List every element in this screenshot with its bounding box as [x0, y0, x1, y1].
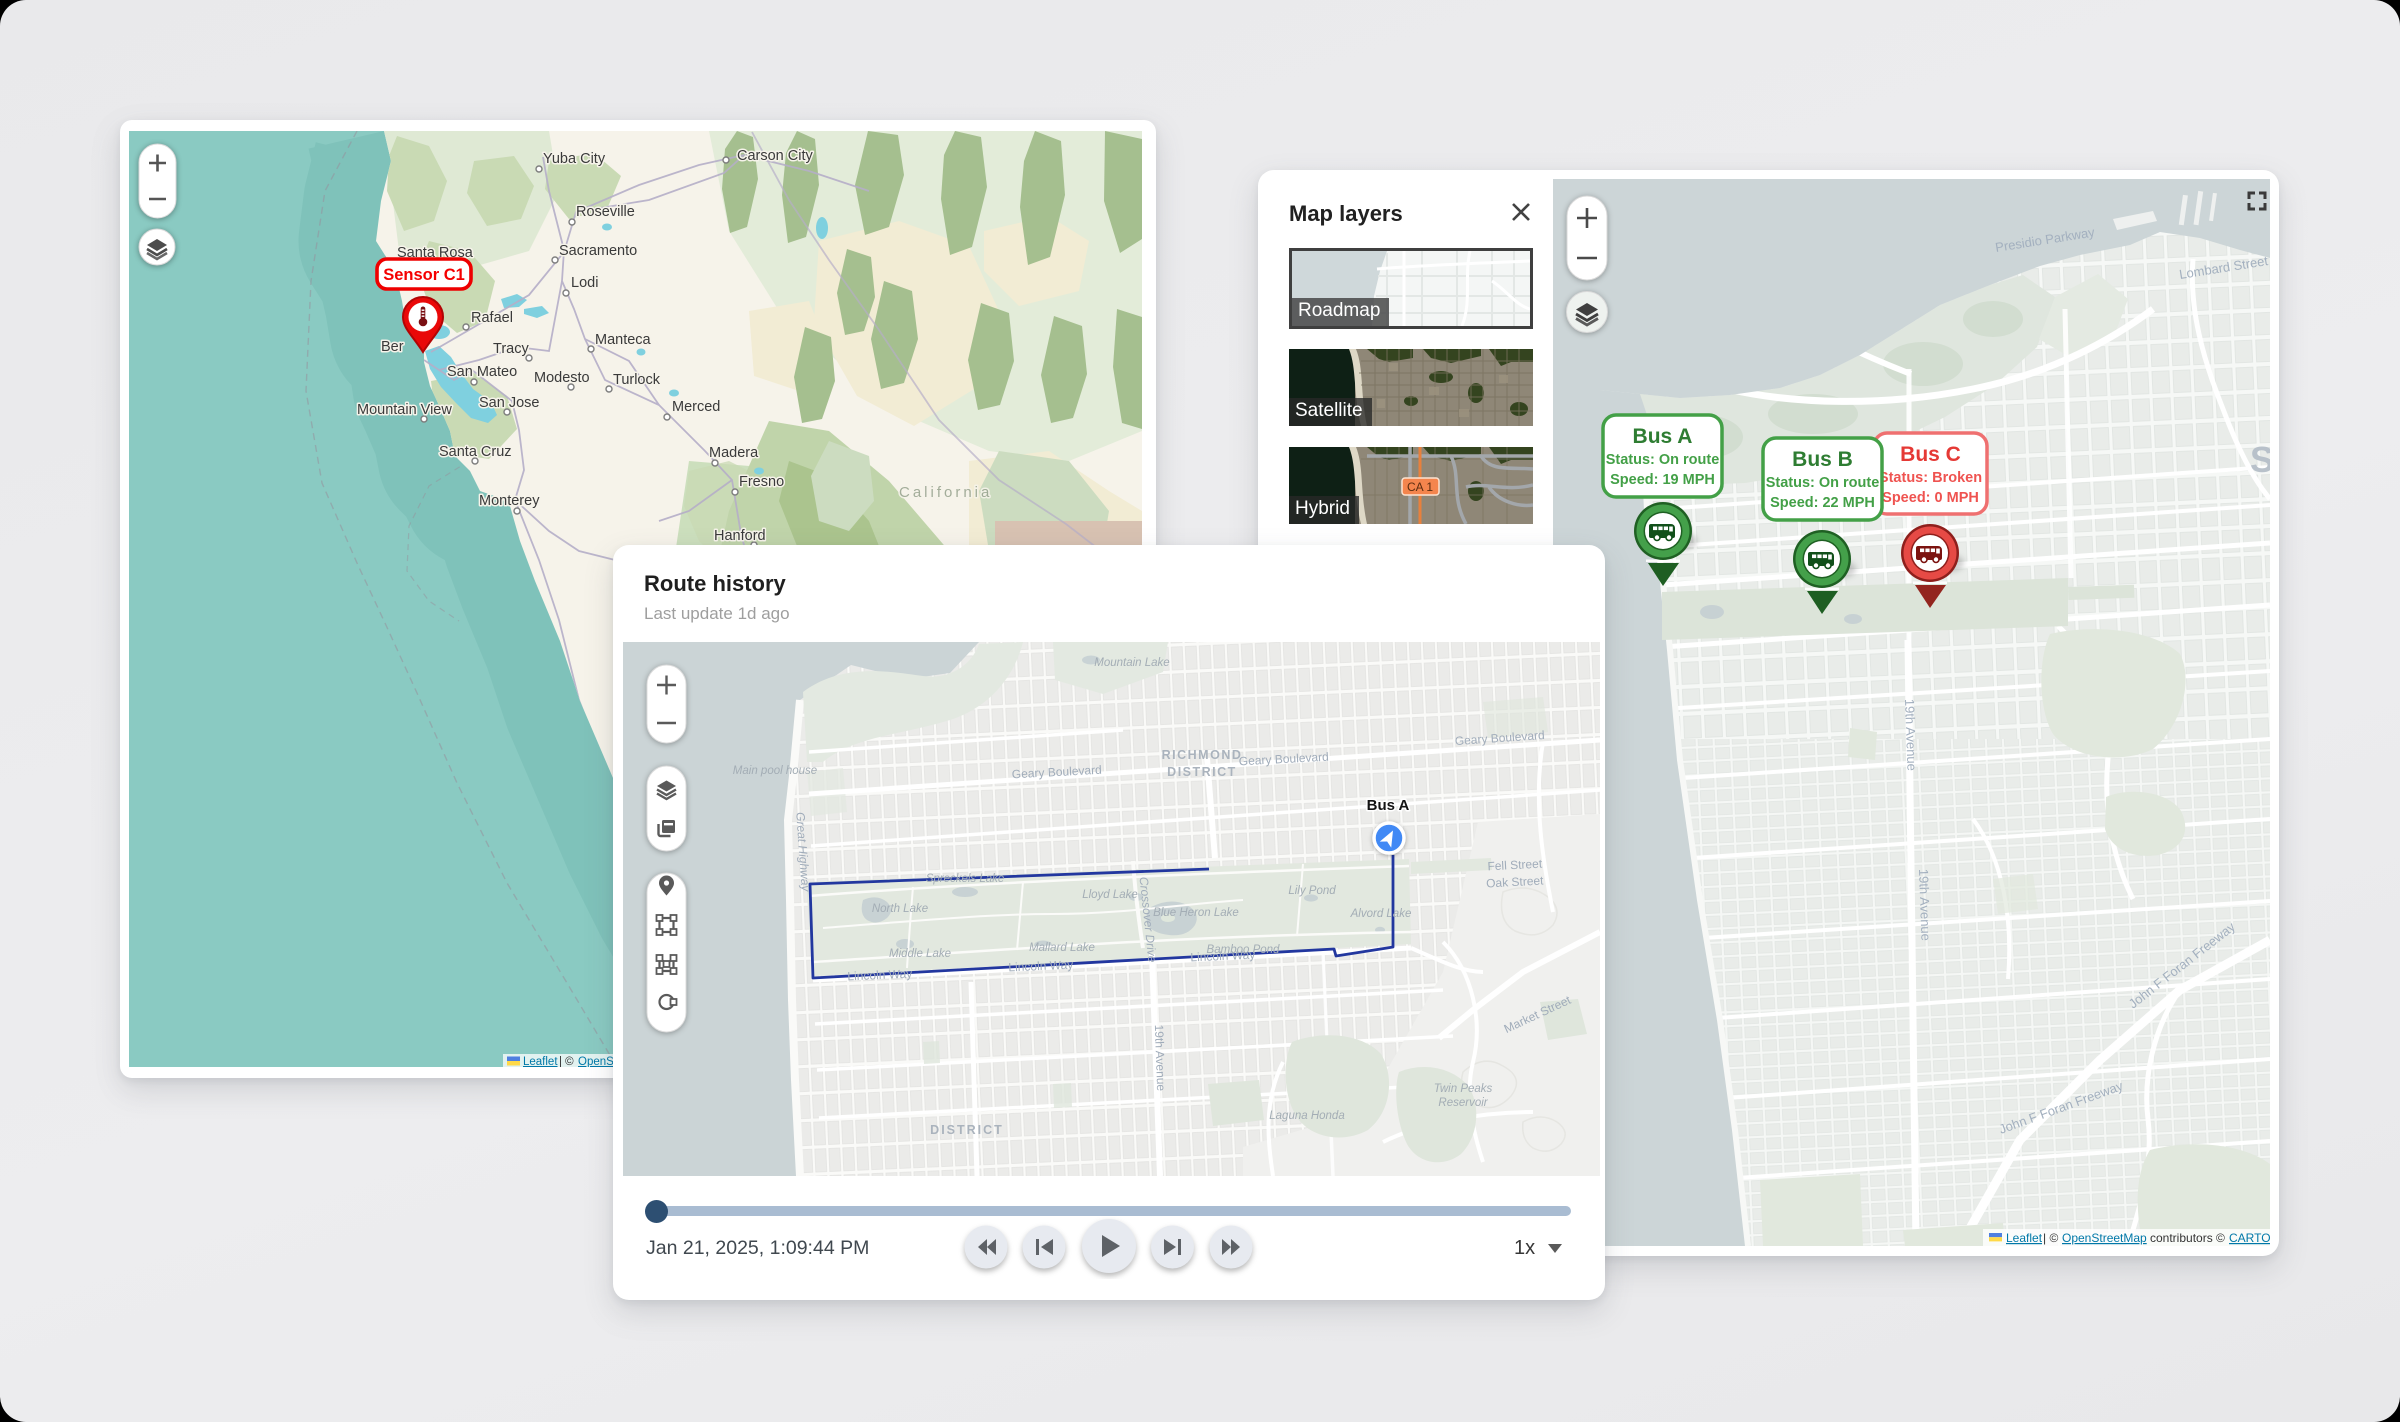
svg-text:OpenStreetMap: OpenStreetMap	[2062, 1231, 2147, 1245]
svg-text:| ©: | ©	[559, 1056, 574, 1067]
svg-text:Status: Broken: Status: Broken	[1879, 470, 1982, 486]
svg-text:Leaflet: Leaflet	[2006, 1231, 2043, 1245]
svg-text:Leaflet: Leaflet	[523, 1056, 558, 1067]
svg-text:Mountain View: Mountain View	[357, 402, 452, 418]
svg-text:Blue Heron Lake: Blue Heron Lake	[1153, 907, 1239, 919]
svg-text:San Jose: San Jose	[479, 395, 539, 411]
svg-text:Sensor C1: Sensor C1	[383, 266, 465, 284]
svg-text:Mallard Lake: Mallard Lake	[1029, 942, 1095, 954]
svg-text:Ber: Ber	[381, 339, 404, 355]
svg-text:Reservoir: Reservoir	[1438, 1097, 1488, 1109]
svg-text:Bus C: Bus C	[1900, 443, 1961, 466]
svg-text:Modesto: Modesto	[534, 370, 590, 386]
svg-text:DISTRICT: DISTRICT	[1167, 765, 1237, 779]
svg-text:Rafael: Rafael	[471, 310, 513, 326]
svg-text:Lincoln Way: Lincoln Way	[1008, 958, 1073, 975]
svg-text:Sacramento: Sacramento	[559, 243, 637, 259]
svg-text:Fell Street: Fell Street	[1487, 857, 1543, 874]
svg-text:Hanford: Hanford	[714, 528, 766, 544]
svg-text:Status: On route: Status: On route	[1606, 452, 1720, 468]
svg-text:Madera: Madera	[709, 445, 759, 461]
svg-text:Speed: 19 MPH: Speed: 19 MPH	[1610, 472, 1715, 488]
svg-text:19th Avenue: 19th Avenue	[1916, 869, 1934, 942]
svg-text:Main pool house: Main pool house	[733, 765, 817, 777]
svg-text:Santa Cruz: Santa Cruz	[439, 444, 512, 460]
svg-text:| ©: | ©	[2043, 1231, 2058, 1245]
svg-text:Turlock: Turlock	[613, 372, 661, 388]
svg-text:CA 1: CA 1	[1407, 480, 1433, 494]
svg-text:Fresno: Fresno	[739, 474, 784, 490]
svg-text:OpenS: OpenS	[578, 1056, 614, 1067]
svg-text:Spreckels Lake: Spreckels Lake	[926, 873, 1005, 885]
svg-text:Lodi: Lodi	[571, 275, 598, 291]
svg-text:Lincoln Way: Lincoln Way	[847, 967, 912, 984]
svg-text:19th Avenue: 19th Avenue	[1152, 1024, 1168, 1091]
svg-text:Merced: Merced	[672, 399, 720, 415]
svg-text:Yuba City: Yuba City	[543, 151, 606, 167]
svg-text:Alvord Lake: Alvord Lake	[1350, 908, 1412, 920]
svg-text:Tracy: Tracy	[493, 341, 529, 357]
svg-text:Status: On route: Status: On route	[1766, 475, 1880, 491]
svg-text:RICHMOND: RICHMOND	[1162, 748, 1243, 762]
svg-text:Speed: 22 MPH: Speed: 22 MPH	[1770, 495, 1875, 511]
svg-text:contributors ©: contributors ©	[2150, 1231, 2225, 1245]
svg-text:Manteca: Manteca	[595, 332, 652, 348]
svg-text:Twin Peaks: Twin Peaks	[1434, 1083, 1493, 1095]
svg-text:California: California	[899, 484, 992, 501]
svg-text:Lloyd Lake: Lloyd Lake	[1082, 889, 1138, 901]
svg-text:Carson City: Carson City	[737, 148, 813, 164]
svg-text:DISTRICT: DISTRICT	[930, 1123, 1004, 1137]
svg-text:Bus A: Bus A	[1367, 797, 1410, 814]
svg-text:Bus B: Bus B	[1792, 448, 1853, 471]
svg-text:Roseville: Roseville	[576, 204, 635, 220]
svg-text:Bus A: Bus A	[1633, 425, 1693, 448]
svg-text:SA: SA	[2250, 439, 2270, 480]
svg-text:North Lake: North Lake	[872, 903, 928, 915]
svg-text:Monterey: Monterey	[479, 493, 540, 509]
svg-text:Middle Lake: Middle Lake	[889, 948, 951, 960]
svg-text:Lily Pond: Lily Pond	[1288, 885, 1336, 897]
svg-text:San Mateo: San Mateo	[447, 364, 517, 380]
svg-text:Mountain Lake: Mountain Lake	[1094, 657, 1169, 669]
svg-text:Speed: 0 MPH: Speed: 0 MPH	[1882, 490, 1979, 506]
svg-text:Laguna Honda: Laguna Honda	[1269, 1110, 1344, 1122]
svg-text:19th Avenue: 19th Avenue	[1902, 699, 1920, 772]
svg-text:CARTO: CARTO	[2229, 1231, 2270, 1245]
svg-text:Lincoln Way: Lincoln Way	[1190, 948, 1255, 965]
